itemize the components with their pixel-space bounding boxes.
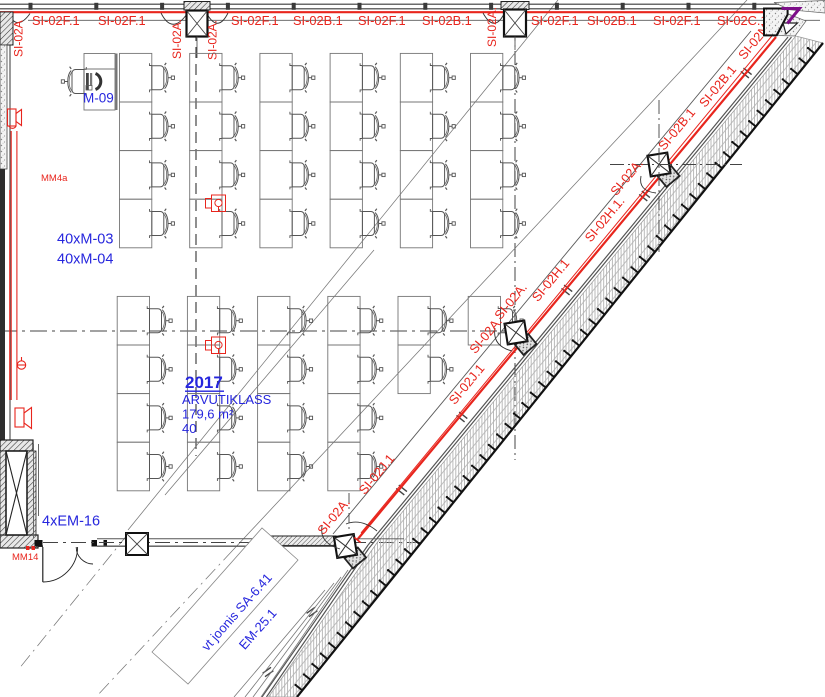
svg-text:2017: 2017: [185, 373, 223, 392]
svg-text:SI-02B.1: SI-02B.1: [293, 13, 343, 28]
svg-text:SI-02F.1: SI-02F.1: [358, 13, 406, 28]
svg-text:SI-02F.1: SI-02F.1: [32, 13, 80, 28]
svg-text:40xM-04: 40xM-04: [57, 252, 113, 268]
svg-text:4xEM-16: 4xEM-16: [42, 514, 100, 530]
svg-text:SI-02F.1: SI-02F.1: [653, 13, 701, 28]
svg-text:179,6 m²: 179,6 m²: [182, 407, 234, 422]
svg-text:ARVUTIKLASS: ARVUTIKLASS: [182, 392, 272, 407]
svg-text:SI-02A.: SI-02A.: [485, 7, 499, 47]
svg-text:MM14: MM14: [12, 552, 38, 563]
svg-text:M-09: M-09: [83, 91, 114, 106]
svg-text:SI-02F.1: SI-02F.1: [531, 13, 579, 28]
svg-text:SI-02A.: SI-02A.: [170, 19, 184, 59]
svg-text:SI-02F.1: SI-02F.1: [98, 13, 146, 28]
svg-text:40: 40: [182, 421, 196, 436]
svg-text:SI-02A.: SI-02A.: [206, 20, 220, 60]
svg-text:MM4a: MM4a: [41, 173, 68, 184]
svg-text:SI-02B.1: SI-02B.1: [587, 13, 637, 28]
svg-text:40xM-03: 40xM-03: [57, 232, 113, 248]
svg-text:SI-02A: SI-02A: [12, 20, 26, 57]
svg-text:SI-02F.1: SI-02F.1: [231, 13, 279, 28]
svg-text:SI-02B.1: SI-02B.1: [422, 13, 472, 28]
